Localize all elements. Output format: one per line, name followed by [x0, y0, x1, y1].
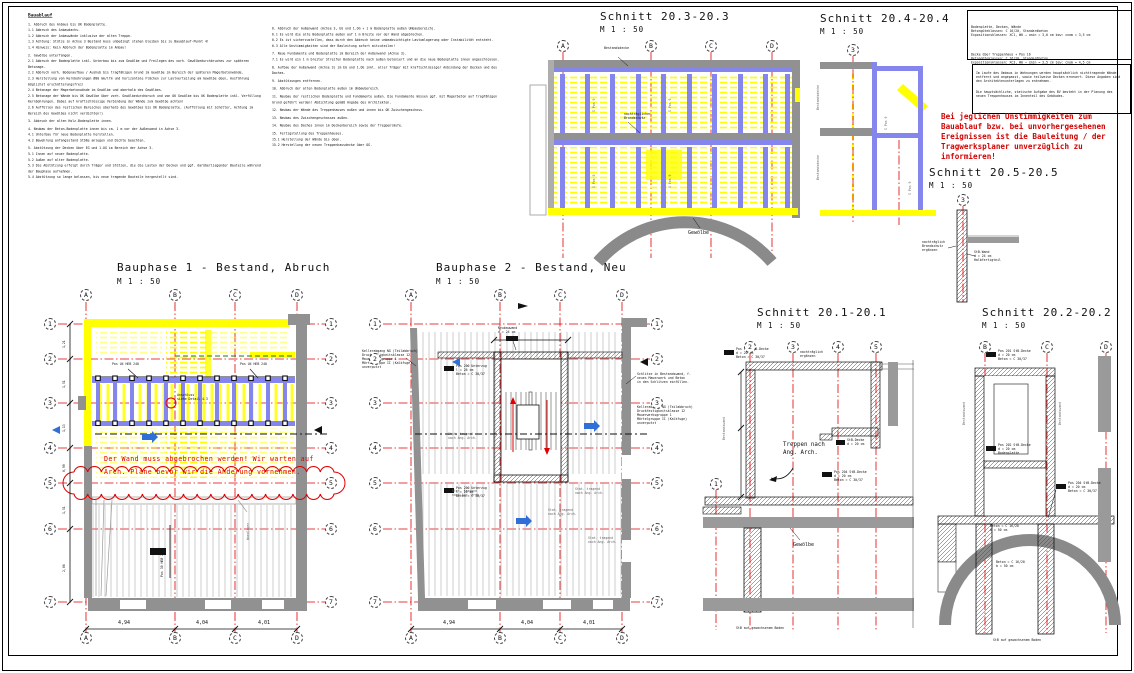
note-line: 5.3 Die Abstützung erfolgt durch Träger … — [28, 163, 264, 175]
note-line: 11. Neubau der restlichen Bodenplatte un… — [272, 94, 508, 106]
warning-note: Bei jeglichen Unstimmigkeiten zum Bauabl… — [941, 112, 1133, 162]
schnitt201-scale: M 1 : 50 — [757, 321, 801, 330]
spos-label: S Pos 9 — [592, 175, 596, 188]
spos-label: S Pos 9 — [668, 175, 672, 188]
grid-bubble-D: D — [1100, 341, 1112, 353]
grid-bubble-D: D — [616, 632, 628, 644]
grid-bubble-2: 2 — [44, 353, 56, 365]
grid-bubble-7: 7 — [651, 596, 663, 608]
dim-label-left: 0,99 — [62, 464, 66, 472]
spec-group-2: Decke über Treppenhaus + Pos 16Betongüte… — [971, 45, 1121, 65]
grid-bubble-7: 7 — [325, 596, 337, 608]
note-line: 15.2 Herstellung der neuen Treppenhausde… — [272, 143, 508, 149]
grid-bubble-3: 3 — [369, 397, 381, 409]
schnitt203-title: Schnitt 20.3-20.3 — [600, 10, 730, 23]
grid-bubble-3: 3 — [44, 397, 56, 409]
bestandswand-label: Bestandswand — [722, 417, 726, 440]
note-line: 2.5 Betonage der Wände bis UK Gewölbe üb… — [28, 93, 264, 105]
dim-label: 4,01 — [583, 620, 595, 626]
brandschutz-label: nachträglicher Brandschutz — [624, 112, 651, 120]
info-paragraph-1: Im Laufe des Umbaus in Wohnungen werden … — [976, 71, 1121, 83]
spec-line: Expositionsklassen: XC1, W0 → cmin = 3,0… — [971, 33, 1121, 37]
info-paragraph-2: Die hauptsächliche, statische Aufgabe de… — [976, 90, 1121, 98]
grid-bubble-5: 5 — [870, 341, 882, 353]
note-line: 2.6 Auffüllen des restlichen Bereiches o… — [28, 105, 264, 117]
dim-label: 4,01 — [258, 620, 270, 626]
grid-bubble-3: 3 — [651, 397, 663, 409]
grid-bubble-7: 7 — [44, 596, 56, 608]
stb-decke-label: StB-Decke d = 20 cm — [847, 438, 864, 446]
grid-bubble-D: D — [616, 289, 628, 301]
grid-bubble-2: 2 — [651, 353, 663, 365]
bestandsdecke-label: Bestandsdecke — [604, 46, 629, 50]
grid-bubble-1: 1 — [369, 318, 381, 330]
grid-bubble-3: 3 — [787, 341, 799, 353]
dim-label: 4,04 — [521, 620, 533, 626]
note-line: 2.3 Herstellung von Kernbohrungen Ø80 mm… — [28, 76, 264, 88]
note-line: 7.1 Es wird ein 1 m breiter Streifen Bod… — [272, 57, 508, 63]
red-site-note: Der Wand muss abgebrochen werden! Wir wa… — [104, 453, 314, 478]
text-overlay: Bauablauf 1. Abbruch des Anbaus bis OK B… — [0, 0, 1134, 673]
grid-bubble-C: C — [554, 632, 566, 644]
grid-bubble-A: A — [405, 289, 417, 301]
nachtraeglich-label: nachträglich ergänzen — [800, 350, 823, 358]
bestandswand-label: Bestandswand — [1058, 402, 1062, 425]
grid-bubble-D: D — [291, 632, 303, 644]
stat-label: Stat. tragend nach Ang. Arch. — [448, 432, 477, 440]
spos-label: S Pos 9 — [908, 182, 912, 195]
grid-bubble-4: 4 — [369, 442, 381, 454]
grid-bubble-5: 5 — [369, 477, 381, 489]
grid-bubble-A: A — [557, 40, 569, 52]
grid-bubble-A: A — [80, 632, 92, 644]
grid-bubble-C: C — [705, 40, 717, 52]
spec-group-1: Bodenplatte, Decken, WändeBetongüteklass… — [971, 17, 1121, 37]
grid-bubble-5: 5 — [325, 477, 337, 489]
schnitt201-title: Schnitt 20.1-20.1 — [757, 306, 887, 319]
dim-label-left: 1,21 — [62, 340, 66, 348]
grid-bubble-C: C — [229, 289, 241, 301]
pos202-label: Pos 202 StB-Decke d = 20 cm Bodenplatte — [998, 443, 1031, 455]
grid-bubble-7: 7 — [369, 596, 381, 608]
note-line: 5.4 Abstützung so lange belassen, bis ne… — [28, 175, 264, 181]
grid-bubble-4: 4 — [651, 442, 663, 454]
dim-label: 4,94 — [443, 620, 455, 626]
brandschutz-label: nachträglich Brandschutz ergänzen — [922, 240, 945, 252]
bauphase1-scale: M 1 : 50 — [117, 277, 161, 286]
grid-bubble-1: 1 — [651, 318, 663, 330]
spos-label: S Pos 9 — [884, 117, 888, 130]
detail-callout: Anschluss siehe Detail 4.3 — [177, 393, 208, 401]
grid-bubble-B: B — [169, 289, 181, 301]
schnitt204-scale: M 1 : 50 — [820, 27, 864, 36]
grid-bubble-B: B — [169, 632, 181, 644]
stb-wand-label: StB-Wand d = 24 cm Halbfertigteil — [974, 250, 1001, 262]
grid-bubble-6: 6 — [651, 523, 663, 535]
bauablauf-list-1: 1. Abbruch des Anbaus bis OK Bodenplatte… — [28, 22, 264, 181]
schnitt203-scale: M 1 : 50 — [600, 25, 644, 34]
note-line: 8. Aufbau der Außenwand (Achse 3) im EG … — [272, 65, 508, 77]
grid-bubble-6: 6 — [325, 523, 337, 535]
schnitt205-scale: M 1 : 50 — [929, 181, 973, 190]
beton-label: Beton = C 16/20 b = 50 cm — [990, 524, 1019, 532]
stat-label: Stat. tragend nach Ang. Arch. — [588, 536, 617, 544]
grid-bubble-2: 2 — [744, 341, 756, 353]
grid-bubble-C: C — [1041, 341, 1053, 353]
grid-bubble-C: C — [554, 289, 566, 301]
grid-bubble-4: 4 — [325, 442, 337, 454]
schnitt202-title: Schnitt 20.2-20.2 — [982, 306, 1112, 319]
beton-label: Beton = C 16/20 b = 50 cm — [996, 560, 1025, 568]
spos-label: S Pos 9 — [668, 99, 672, 112]
pos204-label: Pos 204 StB-Decke d = 20 cm Beton = C 30… — [1068, 481, 1101, 493]
pos201-label: Pos 201 StB-Decke d = 20 cm Beton = C 30… — [998, 349, 1031, 361]
grid-bubble-5: 5 — [44, 477, 56, 489]
boden-label: StB auf gewachsenem Boden — [993, 638, 1041, 642]
dim-label-left: 1,51 — [62, 506, 66, 514]
bauablauf-list-2: 6. Abbruch der Außenwand (Achse 3, EG un… — [272, 26, 508, 148]
concrete-spec-box: Bodenplatte, Decken, WändeBetongüteklass… — [967, 10, 1132, 60]
dim-label-left: 1,13 — [62, 424, 66, 432]
schnitt202-scale: M 1 : 50 — [982, 321, 1026, 330]
grid-bubble-C: C — [229, 632, 241, 644]
grid-bubble-6: 6 — [44, 523, 56, 535]
bauphase1-title: Bauphase 1 - Bestand, Abruch — [117, 261, 330, 274]
beam-label: Pos U4 HEB 240 — [240, 362, 267, 366]
masonry-note-right-2: Kellerabgang NG (Teilabbruch) Druckfesti… — [637, 405, 693, 425]
grid-bubble-2: 2 — [369, 353, 381, 365]
pos204-label: Pos 204 StB-Decke d = 20 cm Beton = C 30… — [834, 470, 867, 482]
schnitt205-title: Schnitt 20.5-20.5 — [929, 166, 1059, 179]
grid-bubble-B: B — [979, 341, 991, 353]
schnitt204-title: Schnitt 20.4-20.4 — [820, 12, 950, 25]
bauphase2-title: Bauphase 2 - Bestand, Neu — [436, 261, 627, 274]
pos-block-label: Pos 30 HEB 240 — [160, 550, 164, 577]
grid-bubble-3: 3 — [325, 397, 337, 409]
grid-bubble-D: D — [291, 289, 303, 301]
grid-bubble-B: B — [494, 632, 506, 644]
gewoelbe-label: Gewölbe — [688, 230, 709, 236]
grid-bubble-1: 1 — [44, 318, 56, 330]
bestandswand-label: Bestandswand — [962, 402, 966, 425]
bestandsdecke-label: Bestandsdecke — [816, 85, 820, 110]
masonry-note-right: Schlitze in Bestandswand, f. neues Mauer… — [637, 372, 691, 384]
grid-bubble-3: 3 — [847, 44, 859, 56]
grid-bubble-B: B — [494, 289, 506, 301]
wandlager-label: Wandlager — [246, 523, 250, 540]
bauablauf-notes-column-2: 6. Abbruch der Außenwand (Achse 3, EG un… — [272, 26, 744, 271]
neubauwand-label: Neubauwand d = 24 cm — [498, 326, 517, 334]
grid-bubble-4: 4 — [44, 442, 56, 454]
grid-bubble-1: 1 — [710, 478, 722, 490]
grid-bubble-3: 3 — [957, 194, 969, 206]
bestandsdecke-label: Bestandsdecke — [816, 155, 820, 180]
boden-label: StB auf gewachsenem Boden — [736, 626, 784, 630]
grid-bubble-2: 2 — [325, 353, 337, 365]
grid-bubble-B: B — [645, 40, 657, 52]
grid-bubble-5: 5 — [651, 477, 663, 489]
grid-bubble-D: D — [766, 40, 778, 52]
stat-label: Stat. tragend nach Ang. Arch. — [548, 508, 577, 516]
grid-bubble-1: 1 — [325, 318, 337, 330]
plan-sheet: Bauablauf 1. Abbruch des Anbaus bis OK B… — [0, 0, 1134, 673]
bauphase2-scale: M 1 : 50 — [436, 277, 480, 286]
pos200-label: Pos 200 Unterzug l = 26 cm Beton = C 30/… — [456, 486, 487, 498]
dim-label-left: 2,06 — [62, 564, 66, 572]
general-info-box: Im Laufe des Umbaus in Wohnungen werden … — [972, 64, 1131, 114]
dim-label-left: 1,51 — [62, 380, 66, 388]
note-line: 2.1 Abbruch der Bodenplatte inkl. Unterb… — [28, 59, 264, 71]
pos200-label: Pos 200 Unterzug l = 26 cm Beton = C 30/… — [456, 364, 487, 376]
treppen-note: Treppen nach Ang. Arch. — [783, 442, 825, 457]
grid-bubble-4: 4 — [832, 341, 844, 353]
stat-label: Stat. tragend nach Ang. Arch. — [575, 487, 604, 495]
grid-bubble-6: 6 — [369, 523, 381, 535]
grid-bubble-A: A — [405, 632, 417, 644]
grid-bubble-A: A — [80, 289, 92, 301]
spos-label: S Pos 9 — [592, 99, 596, 112]
beam-label: Pos U4 HEB 240 — [112, 362, 139, 366]
gewoelbe-label: Gewölbe — [793, 542, 814, 548]
dim-label: 4,94 — [118, 620, 130, 626]
dim-label: 4,04 — [196, 620, 208, 626]
bauablauf-title: Bauablauf — [28, 13, 264, 19]
